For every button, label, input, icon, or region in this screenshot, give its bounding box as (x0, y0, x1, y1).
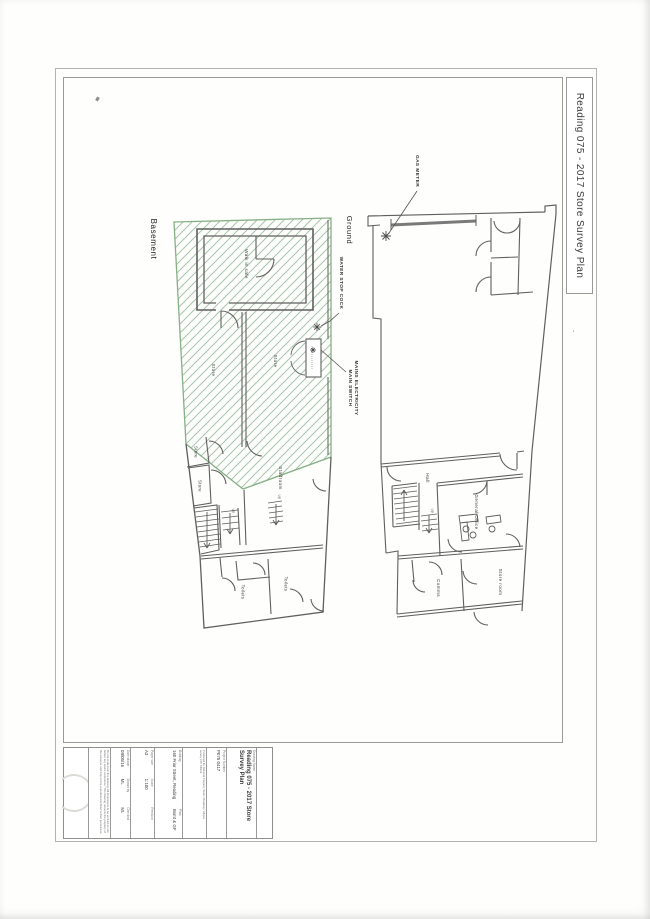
paper-scale-row: Paper size A3 Scale 1:100 Revision (130, 748, 154, 838)
drawn-by-cell: Drawn by ML (112, 779, 129, 808)
stair-up-ground: up (430, 509, 435, 514)
ground-mid-wall (398, 546, 523, 559)
date-cell: Date drawn 09/05/16 (112, 750, 129, 779)
room-toilets-left: Toilets (240, 585, 245, 600)
ground-plan (368, 205, 556, 625)
mains-cupboard (306, 339, 321, 377)
project-number-value: P075 0417 (216, 750, 222, 836)
annotation-gas-meter: GAS METER (413, 155, 419, 187)
scanned-survey-sheet: Reading 075 - 2017 Store Survey Plan (0, 0, 650, 919)
building-cell: Building 160 Friar Street, Reading (156, 750, 181, 809)
date-row: Date drawn 09/05/16 Drawn by ML Checked … (110, 748, 130, 838)
room-hall: Hall (424, 473, 430, 483)
room-store-small-upper: Store (193, 446, 198, 458)
ground-title: Ground (344, 216, 354, 245)
checked-label: Checked (125, 807, 129, 835)
drawn-by-label: Drawn by (125, 779, 129, 807)
drawn-by-value: ML (120, 779, 126, 807)
staffroom-left-wall (244, 490, 246, 545)
building-row: Building 160 Friar Street, Reading Plan … (154, 748, 182, 838)
scale-cell: Scale 1:100 (132, 779, 153, 808)
staffroom-right-door-arc (313, 479, 326, 491)
project-number-label: Project Number (221, 750, 225, 836)
stamp-row (62, 748, 88, 838)
scan-edge-shadow-right (643, 0, 650, 919)
notes-line-2: survey 075 T/Bsmt (198, 750, 201, 836)
room-walk-in-safe: Walk in safe (243, 249, 249, 279)
title-block-spacer-row (256, 748, 272, 838)
project-number-row: Project Number P075 0417 (206, 748, 226, 838)
date-drawn-value: 09/05/16 (120, 750, 126, 778)
disclaimer-text: Do not scale from this drawing. All dime… (90, 750, 109, 836)
date-drawn-label: Date drawn (125, 750, 129, 778)
entrance-lobby-walls (491, 218, 533, 295)
entrance-door-arcs (476, 221, 520, 292)
notes-row: Produced for National Property Team / Re… (182, 748, 206, 838)
water-stop-cock-symbol (313, 323, 321, 331)
basement-title: Basement (148, 219, 158, 260)
disclaimer-row: Do not scale from this drawing. All dime… (88, 748, 110, 838)
ground-steps-treads (421, 514, 438, 531)
revision-cell: Revision (132, 807, 153, 836)
office-chair-2 (470, 532, 476, 538)
title-block-inner: Drawing Name Reading 075 - 2017 Store Su… (63, 747, 273, 839)
drawing-name-value: Reading 075 - 2017 Store Survey Plan (237, 750, 251, 836)
room-store-small-lower: Store (197, 480, 202, 492)
plan-label: Plan (177, 809, 181, 835)
building-value: 160 Friar Street, Reading (172, 750, 178, 808)
drawing-name-label: Drawing Name (251, 750, 255, 836)
revision-label: Revision (149, 807, 153, 835)
room-store-basement-left: Store (210, 364, 216, 377)
ground-stair-treads (393, 486, 419, 524)
title-block: Drawing Name Reading 075 - 2017 Store Su… (63, 747, 273, 839)
paper-cell: Paper size A3 (132, 750, 153, 779)
room-comms: Comms (435, 579, 441, 597)
plan-cell: Plan Bsmt & GF (156, 809, 181, 836)
annotation-water-stop-cock: WATER STOP COCK (337, 257, 343, 310)
staffroom-steps (268, 501, 283, 523)
checked-cell: Checked ML (112, 807, 129, 836)
approval-stamp (62, 770, 88, 816)
gas-meter-leader-line (389, 191, 417, 233)
scale-label: Scale (149, 779, 153, 807)
drawing-name-row: Drawing Name Reading 075 - 2017 Store Su… (226, 748, 256, 838)
room-staffroom: Staffroom (277, 466, 283, 489)
checked-value: ML (120, 807, 126, 835)
scan-edge-shadow-bottom (0, 913, 650, 919)
room-general-office: General Office (473, 494, 479, 529)
room-store-basement-right: Store (272, 355, 278, 368)
ground-left-wall (368, 216, 381, 463)
ground-outline (368, 205, 556, 611)
sales-room-door (500, 453, 517, 470)
office-chair-3 (489, 526, 495, 532)
scale-value: 1:100 (144, 779, 150, 807)
scan-speck (573, 330, 574, 332)
annotation-mains-electricity: MAINS ELECTRICITY MAIN SWITCH (346, 360, 358, 415)
sales-room-bottom-wall (381, 451, 524, 467)
plan-value: Bsmt & GF (172, 809, 178, 835)
room-store-room: Store room (497, 569, 503, 596)
basement-plan (174, 218, 331, 628)
stair-up-basement: up (231, 509, 236, 514)
building-label: Building (177, 750, 181, 808)
office-door-arc (473, 481, 487, 495)
paper-size-label: Paper size (149, 750, 153, 778)
shopfront-glazing (391, 221, 476, 225)
stair-up-staffroom: up (277, 495, 282, 500)
hall-door-arc (387, 467, 401, 481)
office-walls (437, 474, 523, 556)
ground-bottom-door-arcs (413, 562, 488, 625)
ground-bottom-wall (397, 601, 522, 617)
room-toilets-right: Toilets (283, 577, 288, 592)
